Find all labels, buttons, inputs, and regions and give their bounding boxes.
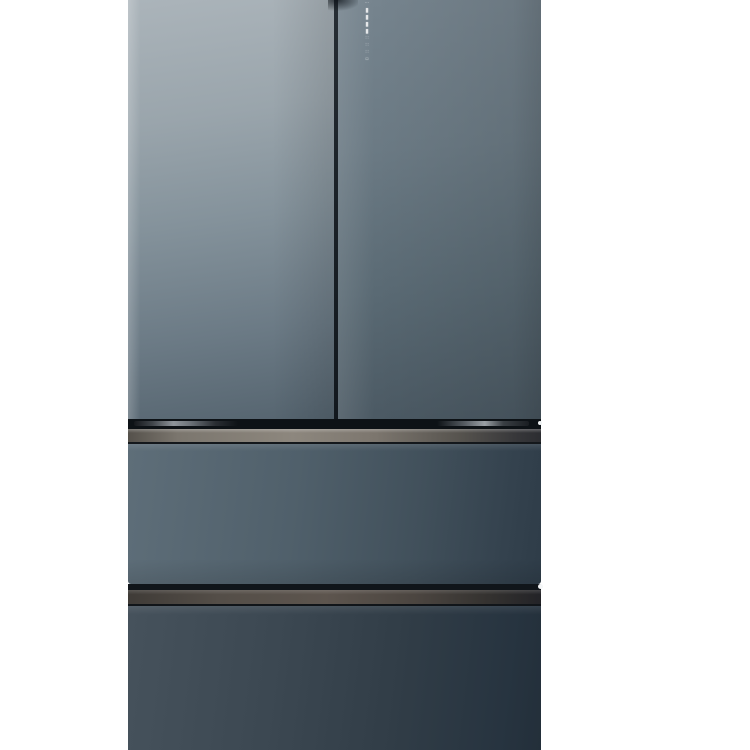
display-segment-icon: ▮ [365,29,368,34]
left-door-hinge [134,421,238,426]
touch-display-panel: ⋯ ▮ ▮ ▮ ▮ ∷ ∷ ∷ ▫ [356,0,378,71]
display-segment-icon: ⋯ [365,1,370,6]
display-segment-readout: ∷ [365,43,368,48]
display-segment-readout: ∷ [365,36,368,41]
hinge-band [128,419,541,429]
display-segment-readout: ∷ [365,50,368,55]
middle-drawer-handle [128,429,541,444]
left-door [128,0,334,419]
bottom-drawer-handle [128,590,541,606]
right-door-hinge [437,421,529,426]
display-segment-indicator: ▫ [365,57,368,62]
gap-highlight [538,584,543,589]
product-photo: ⋯ ▮ ▮ ▮ ▮ ∷ ∷ ∷ ▫ [0,0,750,750]
hinge-highlight [538,421,542,425]
right-door: ⋯ ▮ ▮ ▮ ▮ ∷ ∷ ∷ ▫ [338,0,541,419]
middle-drawer [128,444,541,584]
display-segment-icon: ▮ [365,8,368,13]
display-segment-icon: ▮ [365,22,368,27]
bottom-drawer [128,606,541,750]
upper-door-section: ⋯ ▮ ▮ ▮ ▮ ∷ ∷ ∷ ▫ [128,0,541,419]
refrigerator: ⋯ ▮ ▮ ▮ ▮ ∷ ∷ ∷ ▫ [128,0,541,750]
display-segment-icon: ▮ [365,15,368,20]
